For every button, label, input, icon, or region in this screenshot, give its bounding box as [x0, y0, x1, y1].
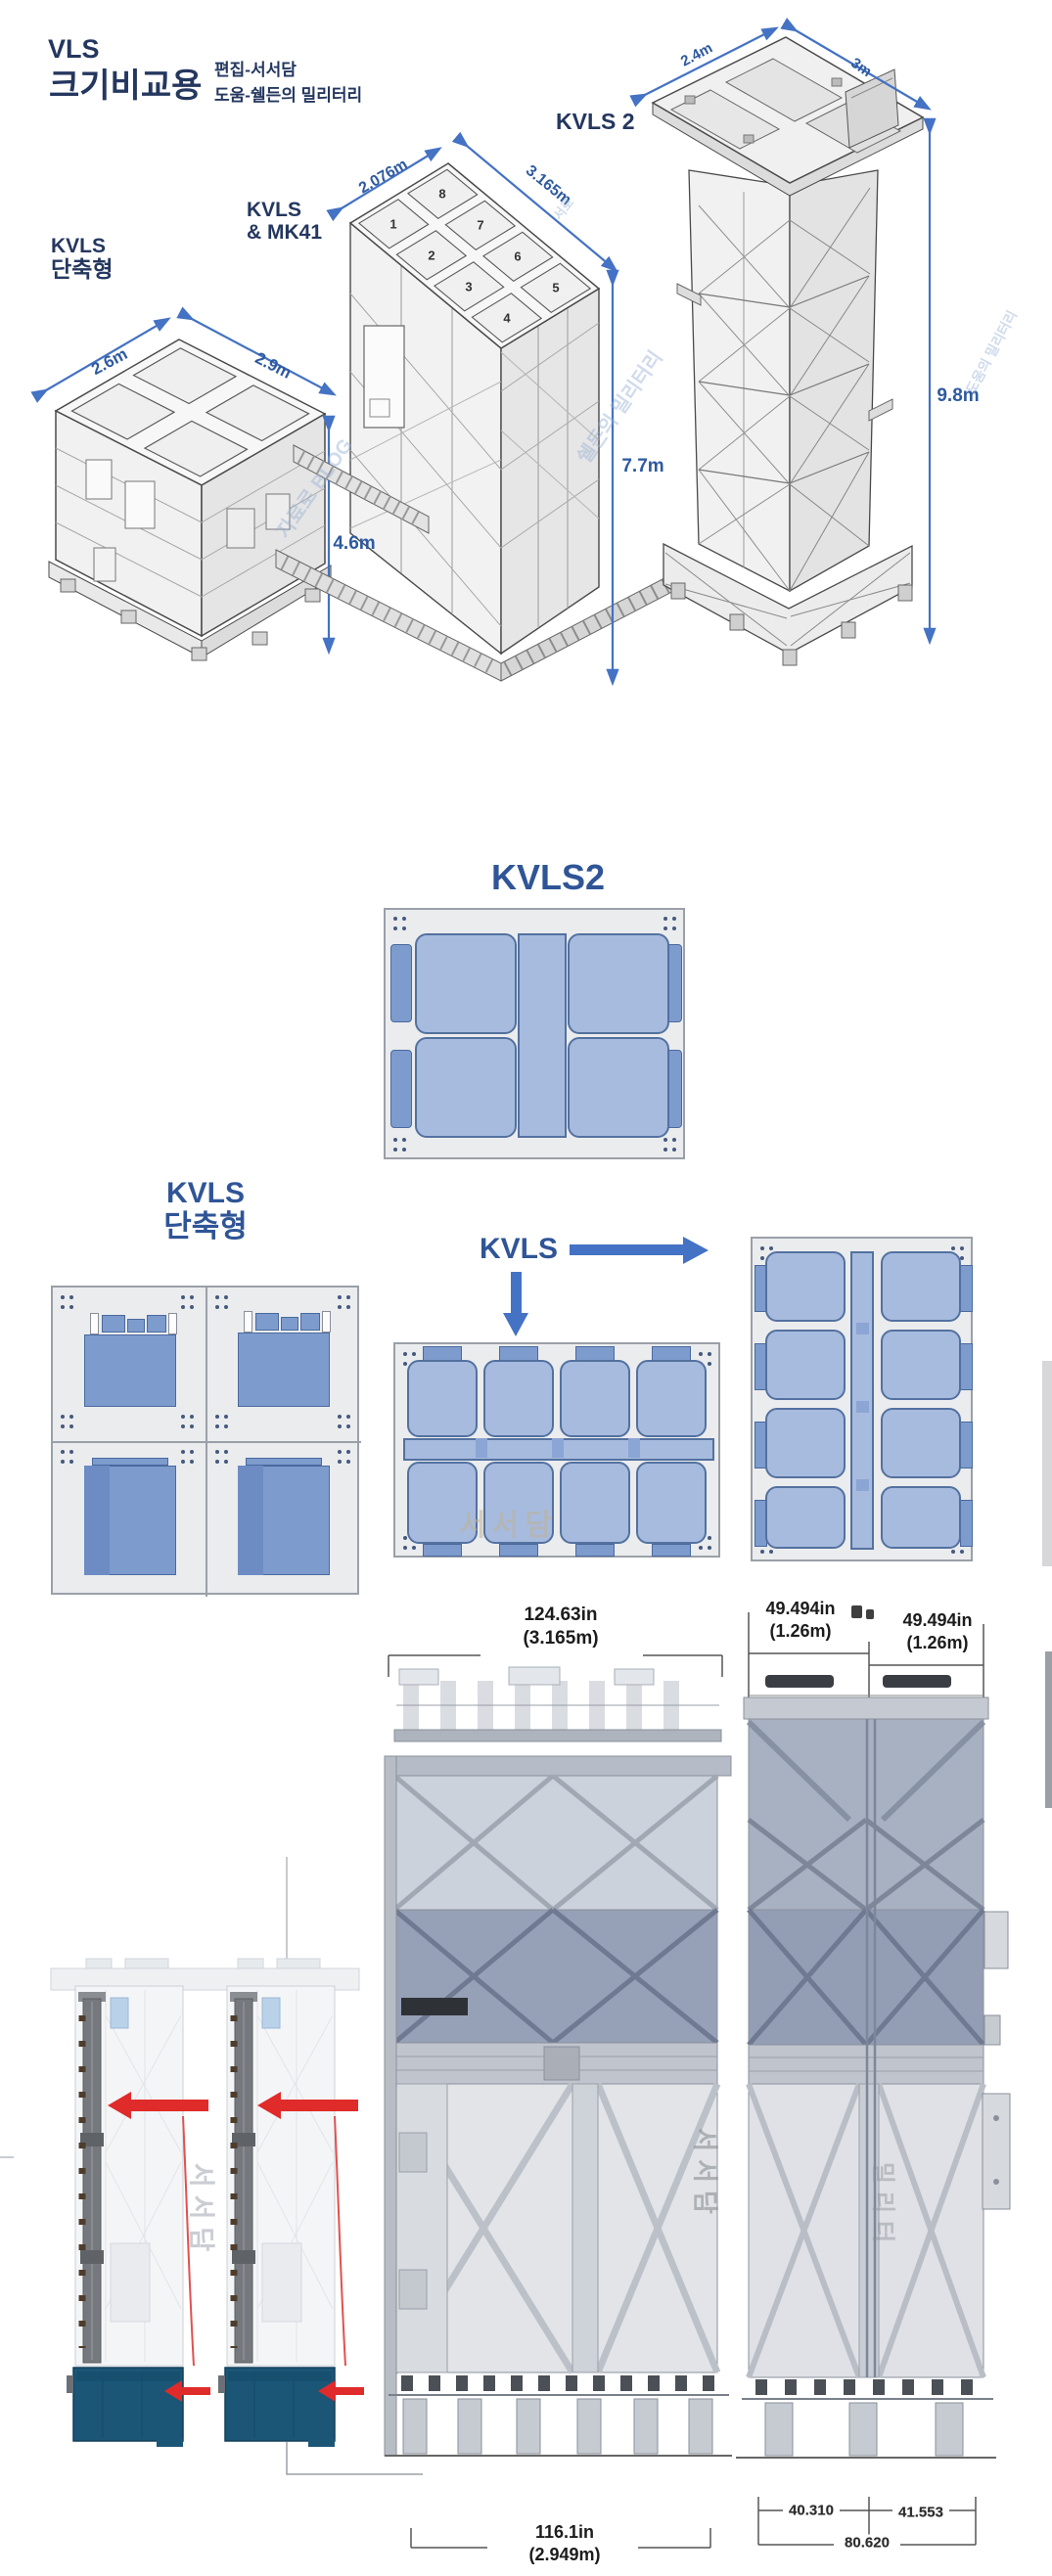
- dim-meters: (1.26m): [765, 1620, 835, 1643]
- dim-kvls2-height: 9.8m: [937, 385, 979, 407]
- dim-bottom-total-value: 80.620: [841, 2535, 893, 2552]
- hatch-part: [127, 1319, 145, 1333]
- edge-tab: [423, 1346, 462, 1361]
- bolt-dots: [663, 917, 667, 921]
- dim-bottom-right-value: 41.553: [898, 2505, 943, 2521]
- dim-mk41-width-label: 124.63in (3.165m): [518, 1603, 603, 1651]
- edge-tab: [575, 1346, 615, 1361]
- hatch-strip: [84, 1466, 110, 1575]
- right-edge-strip: [1042, 1361, 1052, 1566]
- missile-hatch: [560, 1462, 630, 1544]
- missile-hatch: [881, 1408, 961, 1478]
- missile-hatch: [407, 1360, 478, 1437]
- dim-meters: (1.26m): [902, 1632, 972, 1654]
- hatch-part: [147, 1315, 166, 1333]
- bolt-dots: [215, 1450, 219, 1454]
- bolt-dots: [663, 1138, 667, 1142]
- side-tab: [390, 944, 412, 1022]
- bar-notch: [856, 1401, 869, 1413]
- side-tab: [960, 1500, 973, 1547]
- bolt-dots: [181, 1450, 185, 1454]
- bolt-dots: [61, 1415, 65, 1419]
- missile-hatch: [560, 1360, 630, 1437]
- dim-inches: 124.63in: [523, 1604, 598, 1627]
- edge-tab: [499, 1346, 538, 1361]
- kvls-topview-panel-tall: [751, 1237, 973, 1561]
- missile-hatch: [415, 1037, 517, 1138]
- hatch-part: [102, 1315, 125, 1333]
- cutaway-drawings-svg: [0, 1585, 1052, 2576]
- kvls2-cutaway-drawing: [736, 1605, 1010, 2545]
- bolt-dots: [403, 1536, 407, 1540]
- band-notch: [476, 1438, 487, 1458]
- missile-hatch: [636, 1360, 707, 1437]
- dim-kvls2-width-label-2: 49.494in (1.26m): [897, 1608, 977, 1654]
- hatch-slot: [244, 1311, 252, 1333]
- side-tab: [960, 1343, 973, 1390]
- dim-inches: 49.494in: [765, 1598, 835, 1620]
- edge-tab: [423, 1544, 462, 1557]
- mk41-cell-number: 4: [503, 311, 510, 326]
- bolt-dots: [699, 1352, 703, 1356]
- dim-kvls2-width-label-1: 49.494in (1.26m): [760, 1597, 840, 1643]
- kvls-topview-title: KVLS: [480, 1233, 558, 1266]
- hatch-part: [300, 1313, 320, 1331]
- hatch-assembly: [84, 1334, 176, 1407]
- side-tab: [960, 1265, 973, 1312]
- mk41-cutaway-drawing: [385, 1655, 732, 2548]
- band-notch: [628, 1438, 640, 1458]
- bolt-dots: [338, 1415, 342, 1419]
- side-tab: [960, 1422, 973, 1469]
- band-notch: [552, 1438, 564, 1458]
- hatch-slot: [90, 1313, 99, 1334]
- hatch-assembly: [238, 1333, 330, 1407]
- kvls2-label: KVLS 2: [556, 110, 635, 134]
- side-tab: [390, 1050, 412, 1128]
- mk41-cell-number: 1: [389, 217, 396, 232]
- arrow-down-head: [503, 1313, 528, 1336]
- iso-drawings-svg: [0, 0, 1052, 714]
- edge-tab: [652, 1346, 691, 1361]
- arrow-down: [511, 1272, 522, 1313]
- missile-hatch: [881, 1330, 961, 1400]
- dim-inches: 116.1in: [528, 2521, 600, 2544]
- bolt-dots: [393, 1138, 397, 1142]
- bolt-dots: [760, 1246, 764, 1250]
- bar-notch: [856, 1323, 869, 1334]
- kvls2-drawing: [645, 28, 930, 665]
- dim-inches: 49.494in: [902, 1609, 972, 1632]
- hatch-slot: [168, 1313, 177, 1334]
- bolt-dots: [61, 1295, 65, 1299]
- bolt-dots: [215, 1415, 219, 1419]
- bolt-dots: [393, 917, 397, 921]
- missile-hatch: [568, 933, 669, 1034]
- missile-hatch: [636, 1462, 707, 1544]
- kvls-mk41-label-line1: KVLS: [247, 199, 322, 221]
- missile-hatch: [765, 1330, 846, 1400]
- kvls-short-topview-title-line2: 단축형: [163, 1210, 248, 1244]
- hatch-part: [255, 1313, 279, 1331]
- hatch-part: [246, 1458, 322, 1466]
- bolt-dots: [181, 1415, 185, 1419]
- kvls-short-label: KVLS 단축형: [51, 235, 113, 282]
- vls-comparison-infographic: VLS 크기비교용 편집-서서담 도움-쉘든의 밀리터리: [0, 0, 1052, 2576]
- hatch-strip: [238, 1466, 263, 1575]
- missile-hatch: [407, 1462, 478, 1544]
- kvls-short-topview-panel: [51, 1286, 359, 1595]
- kvls-mk41-label-line2: & MK41: [247, 221, 322, 244]
- ghost-canister-drawing: [0, 1857, 423, 2474]
- dim-meters: (3.165m): [523, 1627, 598, 1650]
- dim-bottom-left-value: 40.310: [789, 2503, 834, 2519]
- mk41-cell-number: 6: [514, 249, 521, 264]
- mk41-cell-number: 5: [552, 281, 559, 295]
- edge-tab: [575, 1544, 615, 1557]
- kvls-topview-panel-wide: 서서담: [393, 1342, 720, 1558]
- hatch-slot: [322, 1311, 331, 1333]
- missile-hatch: [881, 1251, 961, 1322]
- dim-kvls-short-height: 4.6m: [333, 533, 375, 555]
- kvls-mk41-label: KVLS & MK41: [247, 199, 322, 244]
- bolt-dots: [338, 1450, 342, 1454]
- kvls-short-label-line1: KVLS: [51, 235, 113, 257]
- mk41-cell-number: 7: [477, 218, 483, 233]
- panel-divider: [53, 1441, 361, 1443]
- hatch-part: [281, 1317, 298, 1331]
- arrow-right-head: [683, 1237, 709, 1264]
- kvls2-topview-title: KVLS2: [491, 858, 605, 897]
- mk41-cell-number: 8: [438, 187, 445, 202]
- dim-mk41-bottom-label: 116.1in (2.949m): [524, 2520, 605, 2566]
- kvls-short-topview-title-line1: KVLS: [163, 1177, 248, 1210]
- kvls-short-label-line2: 단축형: [51, 257, 113, 282]
- bolt-dots: [215, 1295, 219, 1299]
- arrow-right: [570, 1244, 683, 1255]
- center-plenum-bar: [518, 933, 567, 1138]
- bar-notch: [856, 1479, 869, 1491]
- bolt-dots: [403, 1352, 407, 1356]
- dim-meters: (2.949m): [528, 2544, 600, 2566]
- missile-hatch: [568, 1037, 669, 1138]
- missile-hatch: [483, 1360, 554, 1437]
- hatch-part: [92, 1458, 168, 1466]
- edge-tab: [499, 1544, 538, 1557]
- bolt-dots: [181, 1295, 185, 1299]
- kvls2-topview-panel: [384, 908, 685, 1159]
- missile-hatch: [765, 1251, 846, 1322]
- missile-hatch: [765, 1486, 846, 1549]
- missile-hatch: [415, 933, 517, 1034]
- edge-tab: [652, 1544, 691, 1557]
- kvls-short-topview-title: KVLS 단축형: [163, 1177, 248, 1243]
- missile-hatch: [881, 1486, 961, 1549]
- missile-hatch: [483, 1462, 554, 1544]
- dim-mk41-height: 7.7m: [621, 456, 663, 477]
- mk41-cell-number: 2: [428, 249, 435, 263]
- missile-hatch: [765, 1408, 846, 1478]
- bolt-dots: [61, 1450, 65, 1454]
- mk41-cell-number: 3: [465, 280, 472, 294]
- bolt-dots: [338, 1295, 342, 1299]
- bolt-dots: [951, 1246, 955, 1250]
